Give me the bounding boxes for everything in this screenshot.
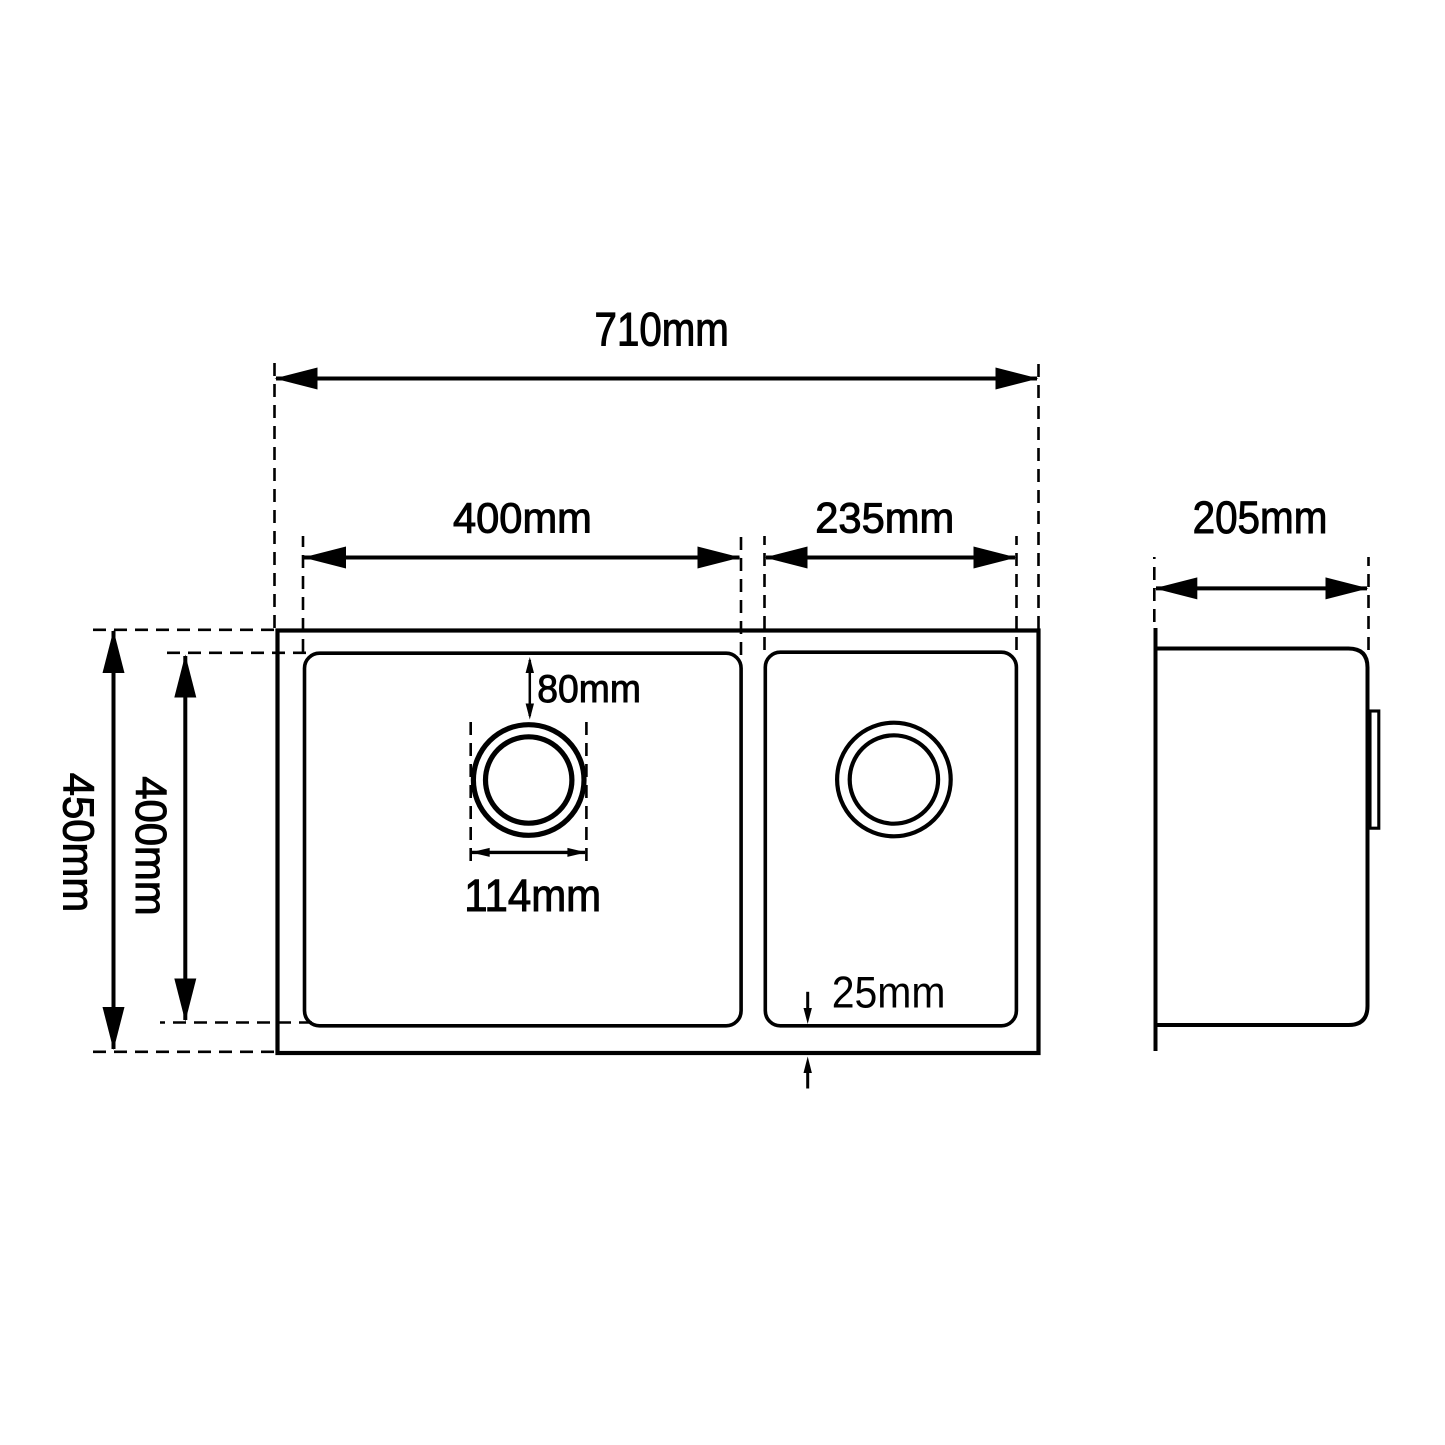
svg-text:80mm: 80mm: [537, 668, 641, 711]
svg-text:205mm: 205mm: [1193, 492, 1328, 543]
svg-text:114mm: 114mm: [464, 870, 601, 921]
svg-text:710mm: 710mm: [595, 303, 729, 356]
svg-text:25mm: 25mm: [832, 969, 946, 1018]
svg-text:235mm: 235mm: [815, 494, 954, 541]
svg-text:400mm: 400mm: [453, 494, 592, 541]
svg-text:400mm: 400mm: [126, 776, 174, 916]
svg-text:450mm: 450mm: [54, 773, 102, 913]
